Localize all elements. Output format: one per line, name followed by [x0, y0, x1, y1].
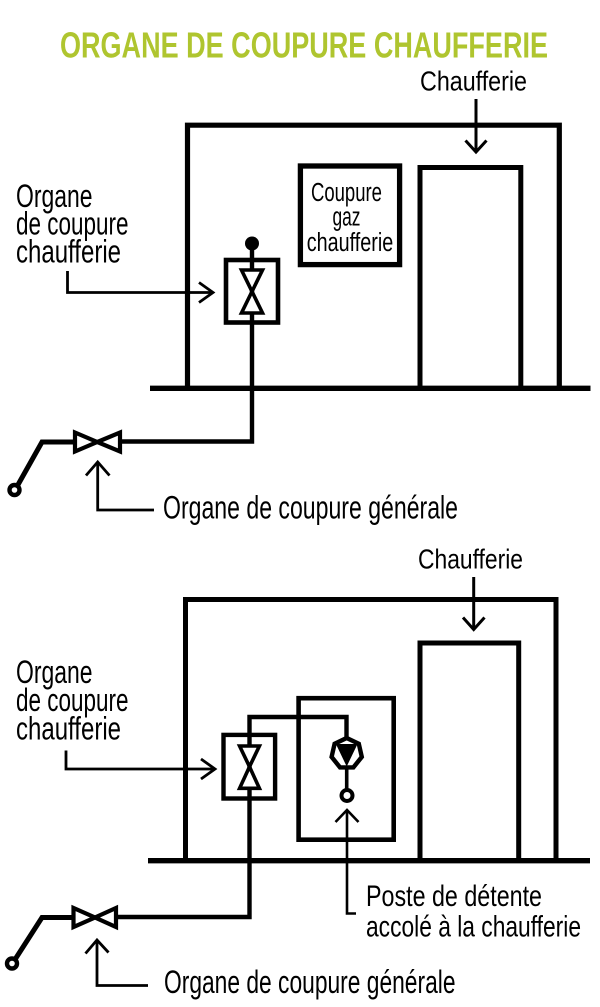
svg-text:Organe de coupure générale: Organe de coupure générale: [164, 964, 456, 1000]
svg-text:Chaufferie: Chaufferie: [420, 66, 527, 97]
svg-text:ORGANE DE COUPURE CHAUFFERIE: ORGANE DE COUPURE CHAUFFERIE: [60, 25, 548, 66]
svg-text:Organe de coupure chauffer: Organe de coupure chaufferie: [16, 178, 137, 269]
svg-text:Organe de coupure chauffer: Organe de coupure chaufferie: [16, 654, 137, 747]
svg-text:Poste de détente accolé à la: Poste de détente accolé à la chaufferie: [366, 880, 581, 943]
svg-text:Chaufferie: Chaufferie: [418, 544, 523, 575]
svg-text:Organe de coupure générale: Organe de coupure générale: [163, 490, 458, 526]
